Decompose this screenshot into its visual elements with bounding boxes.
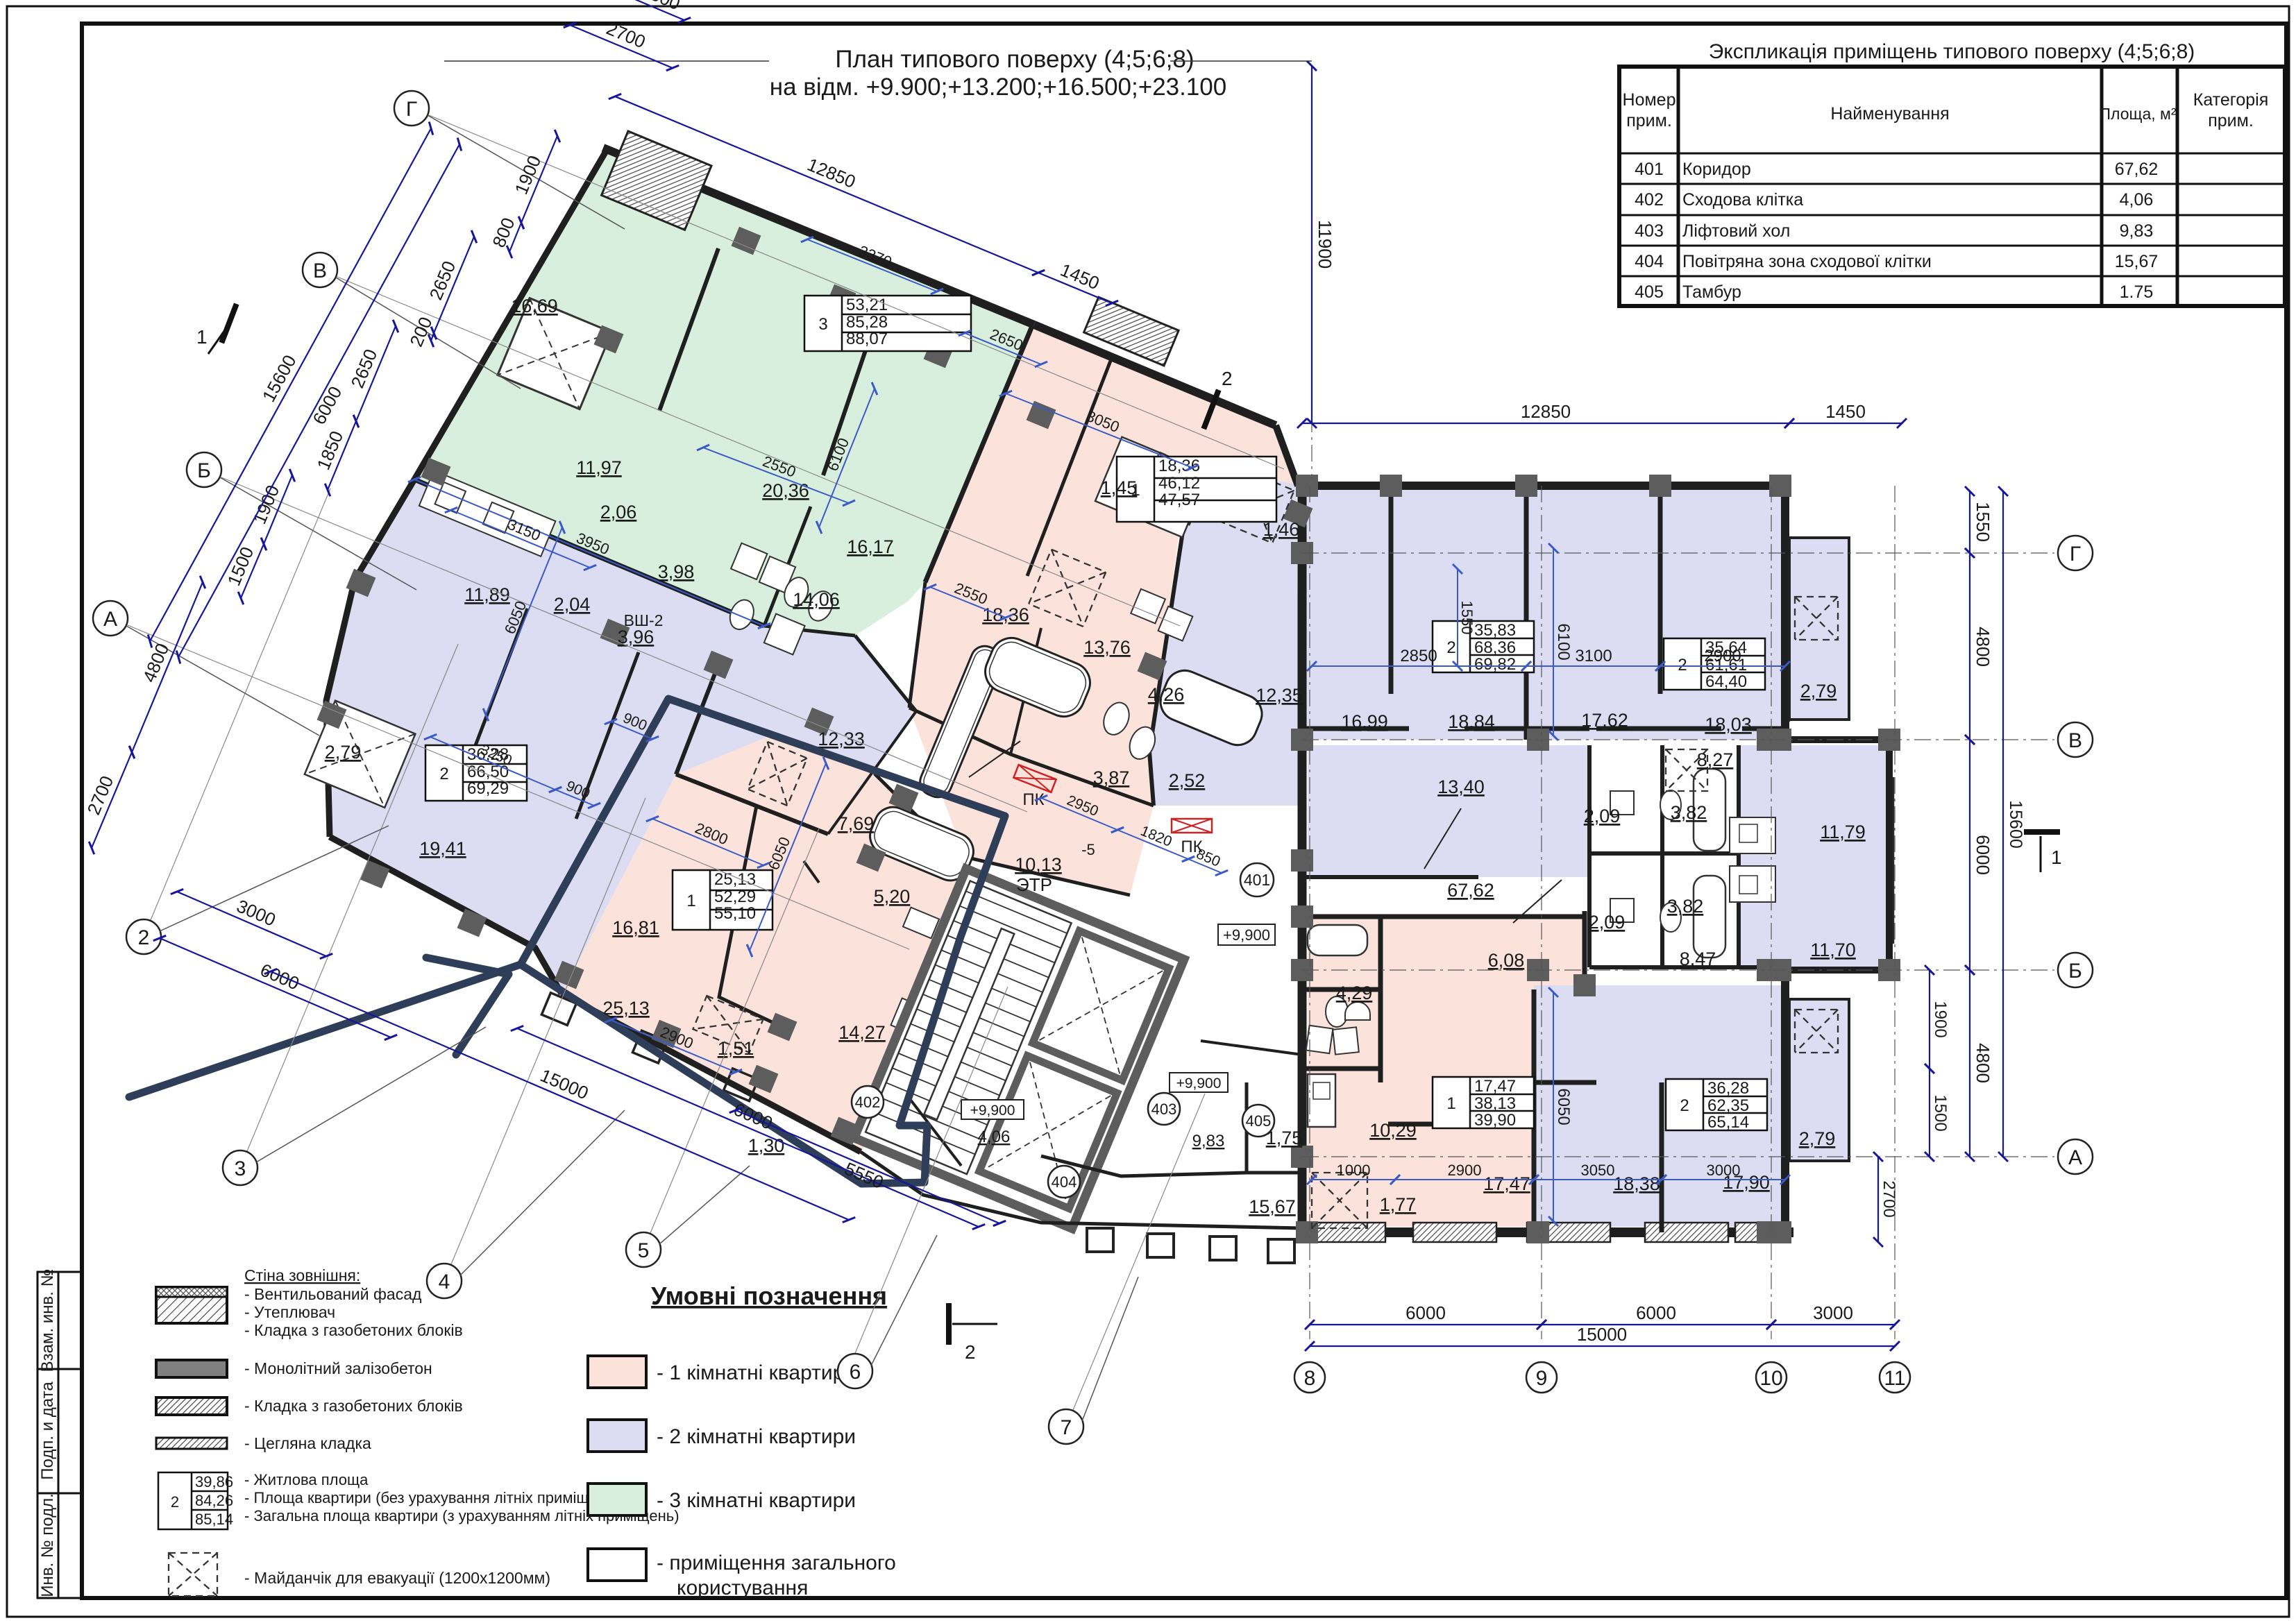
svg-text:3,87: 3,87 bbox=[1093, 767, 1130, 788]
svg-text:на відм. +9.900;+13.200;+16.50: на відм. +9.900;+13.200;+16.500;+23.100 bbox=[770, 74, 1227, 101]
svg-text:1550: 1550 bbox=[1458, 601, 1476, 635]
svg-text:15000: 15000 bbox=[1577, 1324, 1627, 1345]
svg-text:16,99: 16,99 bbox=[1341, 711, 1388, 732]
svg-text:Подп. и дата: Подп. и дата bbox=[38, 1382, 57, 1480]
svg-text:11,70: 11,70 bbox=[1810, 940, 1856, 960]
svg-text:1900: 1900 bbox=[1931, 1001, 1950, 1037]
svg-text:405: 405 bbox=[1246, 1112, 1272, 1130]
svg-text:Сходова клітка: Сходова клітка bbox=[1682, 190, 1803, 210]
svg-text:15600: 15600 bbox=[2006, 800, 2025, 849]
svg-text:12,33: 12,33 bbox=[818, 729, 865, 749]
svg-text:39,86: 39,86 bbox=[195, 1473, 233, 1490]
svg-text:8,47: 8,47 bbox=[1680, 949, 1716, 969]
svg-text:16,81: 16,81 bbox=[612, 917, 659, 938]
svg-text:- Майданчік для евакуації (120: - Майданчік для евакуації (1200х1200мм) bbox=[244, 1569, 550, 1587]
svg-text:2850: 2850 bbox=[1400, 647, 1437, 665]
svg-text:88,07: 88,07 bbox=[846, 330, 888, 348]
svg-text:2,79: 2,79 bbox=[1800, 681, 1837, 702]
svg-text:2700: 2700 bbox=[1880, 1180, 1898, 1217]
svg-text:69,29: 69,29 bbox=[467, 779, 509, 798]
svg-text:План типового поверху (4;5;6;8: План типового поверху (4;5;6;8) bbox=[835, 46, 1194, 73]
svg-text:17,47: 17,47 bbox=[1483, 1173, 1530, 1194]
svg-text:39,90: 39,90 bbox=[1474, 1111, 1516, 1130]
svg-text:- приміщення загального: - приміщення загального bbox=[657, 1552, 896, 1574]
svg-text:18,38: 18,38 bbox=[1613, 1173, 1660, 1194]
svg-text:52,29: 52,29 bbox=[714, 887, 756, 906]
svg-text:В: В bbox=[313, 260, 327, 282]
svg-text:404: 404 bbox=[1052, 1173, 1077, 1191]
svg-text:6000: 6000 bbox=[1406, 1302, 1446, 1323]
svg-text:- Кладка з газобетоних блоків: - Кладка з газобетоних блоків bbox=[244, 1321, 463, 1339]
svg-text:402: 402 bbox=[1635, 190, 1664, 210]
svg-text:68,36: 68,36 bbox=[1474, 638, 1516, 657]
svg-text:3,98: 3,98 bbox=[658, 561, 695, 582]
svg-text:15,67: 15,67 bbox=[1249, 1196, 1296, 1217]
svg-text:- 3 кімнатні квартири: - 3 кімнатні квартири bbox=[657, 1489, 856, 1512]
svg-text:- Житлова площа: - Житлова площа bbox=[244, 1471, 369, 1488]
svg-text:4,26: 4,26 bbox=[1148, 684, 1185, 705]
svg-text:6100: 6100 bbox=[1554, 623, 1573, 660]
svg-text:ПК: ПК bbox=[1022, 790, 1044, 809]
svg-text:4800: 4800 bbox=[1973, 627, 1993, 667]
svg-text:402: 402 bbox=[855, 1094, 881, 1111]
svg-text:10: 10 bbox=[1759, 1367, 1782, 1390]
svg-text:4,29: 4,29 bbox=[1336, 983, 1373, 1003]
svg-text:1550: 1550 bbox=[1973, 502, 1993, 542]
svg-text:- Утеплювач: - Утеплювач bbox=[244, 1303, 335, 1321]
svg-text:1450: 1450 bbox=[1825, 401, 1866, 422]
svg-text:А: А bbox=[2068, 1146, 2082, 1169]
svg-text:3,82: 3,82 bbox=[1667, 896, 1704, 917]
svg-text:прим.: прим. bbox=[2208, 111, 2254, 130]
svg-text:1,46: 1,46 bbox=[1263, 519, 1300, 540]
svg-text:11900: 11900 bbox=[1315, 220, 1335, 269]
svg-text:9: 9 bbox=[1536, 1367, 1548, 1390]
svg-text:53,21: 53,21 bbox=[846, 296, 888, 314]
svg-text:+9,900: +9,900 bbox=[1223, 926, 1270, 944]
svg-text:10,29: 10,29 bbox=[1369, 1120, 1417, 1141]
svg-text:2,79: 2,79 bbox=[325, 742, 362, 763]
svg-text:38,13: 38,13 bbox=[1474, 1094, 1516, 1113]
svg-text:25,13: 25,13 bbox=[714, 870, 756, 889]
svg-text:9,83: 9,83 bbox=[2120, 221, 2154, 241]
svg-text:46,12: 46,12 bbox=[1158, 474, 1200, 493]
svg-text:1500: 1500 bbox=[1931, 1094, 1950, 1131]
svg-text:Коридор: Коридор bbox=[1682, 160, 1751, 179]
svg-text:401: 401 bbox=[1635, 160, 1664, 179]
svg-text:2: 2 bbox=[171, 1493, 179, 1511]
svg-text:20,36: 20,36 bbox=[762, 480, 809, 501]
svg-text:405: 405 bbox=[1635, 282, 1664, 302]
svg-text:67,62: 67,62 bbox=[1447, 880, 1494, 901]
svg-text:14,27: 14,27 bbox=[838, 1022, 886, 1043]
svg-text:1: 1 bbox=[1446, 1094, 1455, 1113]
svg-text:2: 2 bbox=[439, 765, 448, 783]
svg-text:2,79: 2,79 bbox=[1799, 1128, 1836, 1149]
svg-text:2900: 2900 bbox=[1448, 1162, 1482, 1179]
svg-text:Г: Г bbox=[406, 98, 417, 121]
svg-text:13,40: 13,40 bbox=[1437, 776, 1485, 797]
svg-text:2,52: 2,52 bbox=[1169, 770, 1206, 791]
svg-text:- Кладка з газобетоних блоків: - Кладка з газобетоних блоків bbox=[244, 1397, 463, 1415]
svg-text:2,06: 2,06 bbox=[600, 502, 637, 522]
svg-text:1000: 1000 bbox=[1337, 1162, 1371, 1179]
svg-text:ВШ-2: ВШ-2 bbox=[624, 611, 664, 629]
svg-text:67,62: 67,62 bbox=[2115, 160, 2159, 179]
svg-text:6,08: 6,08 bbox=[1488, 950, 1525, 971]
svg-text:Б: Б bbox=[2068, 960, 2082, 983]
svg-text:7,69: 7,69 bbox=[838, 813, 875, 834]
svg-text:Категорія: Категорія bbox=[2193, 90, 2268, 110]
svg-text:35,83: 35,83 bbox=[1474, 621, 1516, 640]
svg-text:-5: -5 bbox=[1081, 841, 1095, 858]
svg-text:14,06: 14,06 bbox=[793, 589, 840, 610]
svg-text:403: 403 bbox=[1151, 1101, 1177, 1118]
svg-text:А: А bbox=[103, 608, 117, 631]
svg-text:3: 3 bbox=[818, 315, 827, 334]
svg-text:1: 1 bbox=[686, 892, 695, 910]
svg-text:65,14: 65,14 bbox=[1707, 1113, 1749, 1132]
svg-text:401: 401 bbox=[1244, 871, 1270, 889]
svg-text:- 1 кімнатні квартири: - 1 кімнатні квартири bbox=[657, 1361, 856, 1384]
svg-text:55,10: 55,10 bbox=[714, 904, 756, 923]
svg-text:4,06: 4,06 bbox=[978, 1128, 1011, 1146]
svg-text:2,09: 2,09 bbox=[1584, 806, 1621, 826]
svg-text:64,40: 64,40 bbox=[1705, 672, 1747, 691]
svg-text:2: 2 bbox=[1446, 638, 1455, 657]
svg-text:5: 5 bbox=[638, 1239, 650, 1262]
svg-text:користування: користування bbox=[677, 1577, 808, 1599]
svg-text:Экспликація приміщень типового: Экспликація приміщень типового поверху (… bbox=[1709, 40, 2195, 63]
svg-text:84,26: 84,26 bbox=[195, 1492, 233, 1509]
svg-text:16,17: 16,17 bbox=[847, 536, 894, 557]
svg-text:В: В bbox=[2068, 729, 2082, 752]
svg-text:12850: 12850 bbox=[1521, 401, 1571, 422]
svg-text:2,04: 2,04 bbox=[554, 594, 591, 615]
svg-text:3,82: 3,82 bbox=[1671, 802, 1707, 823]
svg-text:Инв. № подл.: Инв. № подл. bbox=[38, 1493, 57, 1597]
svg-text:10,13: 10,13 bbox=[1015, 854, 1062, 875]
svg-text:Взам. инв. №: Взам. инв. № bbox=[38, 1269, 57, 1373]
svg-text:12,35: 12,35 bbox=[1256, 685, 1303, 706]
svg-text:25,13: 25,13 bbox=[602, 998, 650, 1019]
svg-text:8,27: 8,27 bbox=[1697, 749, 1734, 770]
svg-text:- Цегляна кладка: - Цегляна кладка bbox=[244, 1434, 371, 1452]
svg-text:7: 7 bbox=[1061, 1416, 1072, 1439]
svg-text:17,62: 17,62 bbox=[1581, 710, 1628, 731]
svg-text:1,77: 1,77 bbox=[1380, 1194, 1417, 1215]
svg-text:6050: 6050 bbox=[1554, 1088, 1573, 1125]
svg-text:- Площа квартири (без урахуван: - Площа квартири (без урахування літніх … bbox=[244, 1489, 618, 1506]
svg-text:4,06: 4,06 bbox=[2120, 190, 2154, 210]
svg-text:5,20: 5,20 bbox=[874, 886, 911, 907]
svg-text:85,28: 85,28 bbox=[846, 313, 888, 332]
svg-text:1: 1 bbox=[196, 326, 208, 348]
svg-text:69,82: 69,82 bbox=[1474, 655, 1516, 674]
svg-text:3100: 3100 bbox=[1575, 647, 1612, 665]
svg-text:+9,900: +9,900 bbox=[970, 1103, 1015, 1119]
svg-text:прим.: прим. bbox=[1626, 111, 1672, 130]
svg-text:1.75: 1.75 bbox=[2120, 282, 2154, 302]
svg-text:Площа, м²: Площа, м² bbox=[2100, 105, 2177, 123]
svg-text:8: 8 bbox=[1304, 1367, 1316, 1390]
svg-text:ЭТР: ЭТР bbox=[1016, 874, 1052, 895]
svg-text:3000: 3000 bbox=[1707, 1162, 1741, 1179]
svg-text:4: 4 bbox=[439, 1271, 450, 1293]
svg-text:3050: 3050 bbox=[1581, 1162, 1615, 1179]
svg-text:Г: Г bbox=[2070, 543, 2081, 566]
svg-text:11,79: 11,79 bbox=[1820, 822, 1866, 842]
svg-text:3000: 3000 bbox=[1813, 1302, 1853, 1323]
svg-text:85,14: 85,14 bbox=[195, 1511, 233, 1528]
svg-text:4800: 4800 bbox=[1973, 1043, 1993, 1083]
svg-text:1,51: 1,51 bbox=[718, 1038, 754, 1059]
svg-text:Найменування: Найменування bbox=[1830, 104, 1949, 124]
svg-text:- 2 кімнатні квартири: - 2 кімнатні квартири bbox=[657, 1425, 856, 1448]
svg-text:11,97: 11,97 bbox=[576, 457, 622, 478]
svg-text:6: 6 bbox=[850, 1361, 861, 1384]
svg-text:16,69: 16,69 bbox=[511, 296, 558, 316]
svg-text:403: 403 bbox=[1635, 221, 1664, 241]
svg-text:18,36: 18,36 bbox=[982, 604, 1029, 625]
svg-text:Умовні позначення: Умовні позначення bbox=[651, 1282, 887, 1310]
svg-text:+9,900: +9,900 bbox=[1176, 1076, 1222, 1091]
svg-text:2: 2 bbox=[1678, 656, 1687, 674]
svg-text:19,41: 19,41 bbox=[419, 838, 466, 859]
svg-text:1,30: 1,30 bbox=[748, 1135, 785, 1156]
svg-text:2: 2 bbox=[1222, 368, 1233, 389]
svg-text:2900: 2900 bbox=[1704, 647, 1741, 665]
svg-text:17,47: 17,47 bbox=[1474, 1077, 1516, 1096]
svg-text:2: 2 bbox=[138, 926, 150, 949]
svg-text:62,35: 62,35 bbox=[1707, 1096, 1749, 1115]
svg-text:11: 11 bbox=[1884, 1367, 1905, 1390]
svg-text:13,76: 13,76 bbox=[1083, 637, 1131, 658]
svg-text:3: 3 bbox=[235, 1157, 246, 1180]
svg-text:Номер: Номер bbox=[1623, 90, 1676, 110]
svg-text:9,83: 9,83 bbox=[1192, 1132, 1225, 1150]
svg-text:Б: Б bbox=[197, 459, 211, 482]
svg-text:404: 404 bbox=[1635, 252, 1664, 271]
svg-text:15,67: 15,67 bbox=[2115, 252, 2159, 271]
svg-text:2: 2 bbox=[1680, 1096, 1689, 1115]
svg-text:2,09: 2,09 bbox=[1589, 912, 1626, 933]
svg-text:18,84: 18,84 bbox=[1448, 711, 1495, 732]
svg-text:Повітряна зона сходової клітки: Повітряна зона сходової клітки bbox=[1682, 252, 1932, 271]
svg-text:Тамбур: Тамбур bbox=[1682, 282, 1741, 302]
svg-text:2: 2 bbox=[965, 1341, 976, 1363]
svg-text:- Монолітний залізобетон: - Монолітний залізобетон bbox=[244, 1359, 432, 1377]
svg-text:1: 1 bbox=[2051, 847, 2062, 868]
svg-text:6000: 6000 bbox=[1636, 1302, 1676, 1323]
svg-text:36,28: 36,28 bbox=[1707, 1079, 1749, 1098]
svg-text:1,45: 1,45 bbox=[1101, 477, 1138, 498]
svg-text:6000: 6000 bbox=[1973, 835, 1993, 875]
svg-text:47,57: 47,57 bbox=[1158, 491, 1200, 509]
svg-text:Стіна зовнішня:: Стіна зовнішня: bbox=[244, 1266, 360, 1284]
svg-text:18,03: 18,03 bbox=[1705, 714, 1752, 735]
svg-text:Ліфтовий хол: Ліфтовий хол bbox=[1682, 221, 1790, 241]
svg-text:- Вентильований фасад: - Вентильований фасад bbox=[244, 1285, 422, 1303]
